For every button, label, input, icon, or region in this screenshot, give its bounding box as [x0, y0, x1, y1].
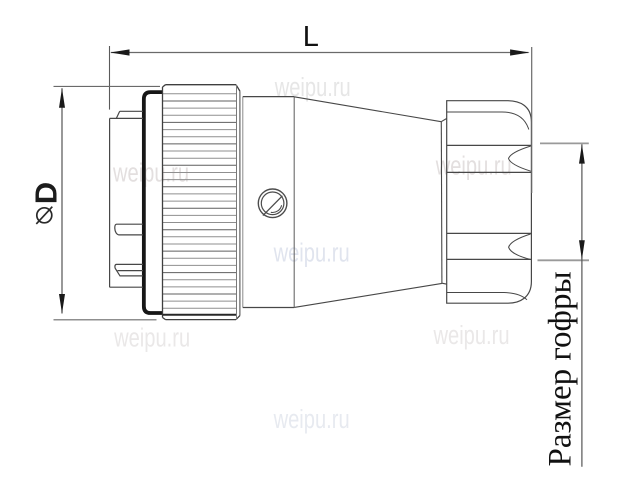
svg-text:weipu.ru: weipu.ru [113, 323, 190, 352]
svg-text:Размер гофры: Размер гофры [543, 271, 579, 466]
svg-text:weipu.ru: weipu.ru [273, 405, 350, 434]
svg-text:weipu.ru: weipu.ru [273, 238, 350, 267]
svg-text:D: D [29, 182, 64, 204]
svg-text:weipu.ru: weipu.ru [433, 321, 510, 350]
svg-text:L: L [303, 21, 319, 53]
svg-text:weipu.ru: weipu.ru [274, 73, 351, 102]
